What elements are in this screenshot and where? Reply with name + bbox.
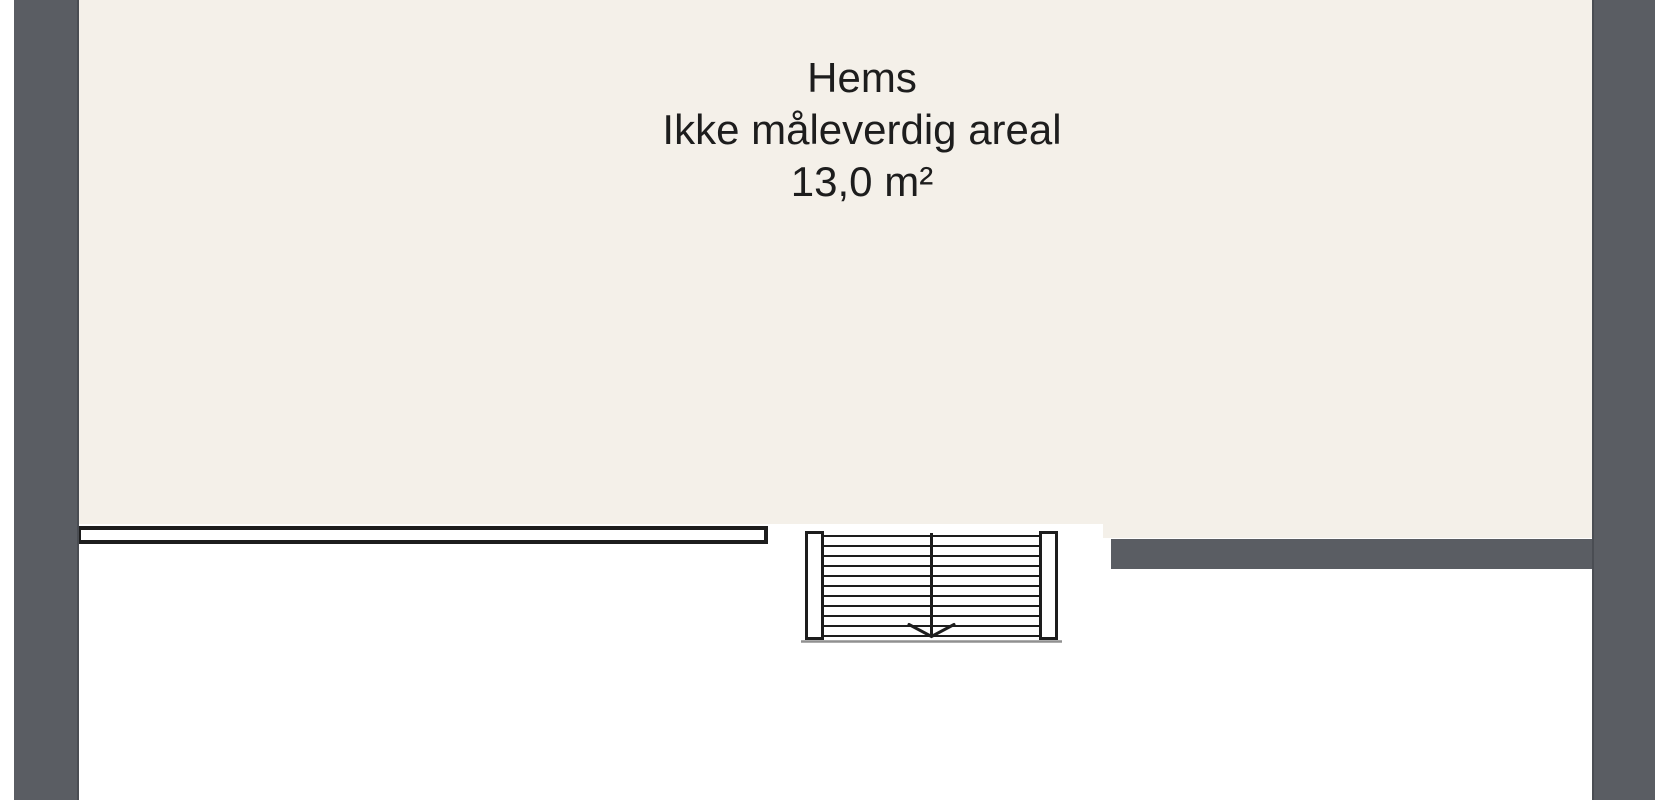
floor-plan-hems: Hems Ikke måleverdig areal 13,0 m² [0,0,1670,800]
staircase-post-right [1041,533,1057,639]
room-description: Ikke måleverdig areal [662,104,1061,156]
wall-right [1592,0,1655,800]
wall-bottom-horizontal [1111,539,1592,569]
staircase [780,515,1080,650]
staircase-post-left [807,533,823,639]
room-label: Hems Ikke måleverdig areal 13,0 m² [662,52,1061,208]
room-name: Hems [662,52,1061,104]
loft-railing [79,526,768,544]
wall-left [14,0,79,800]
room-area: 13,0 m² [662,156,1061,208]
floor-area-step [1103,524,1592,538]
